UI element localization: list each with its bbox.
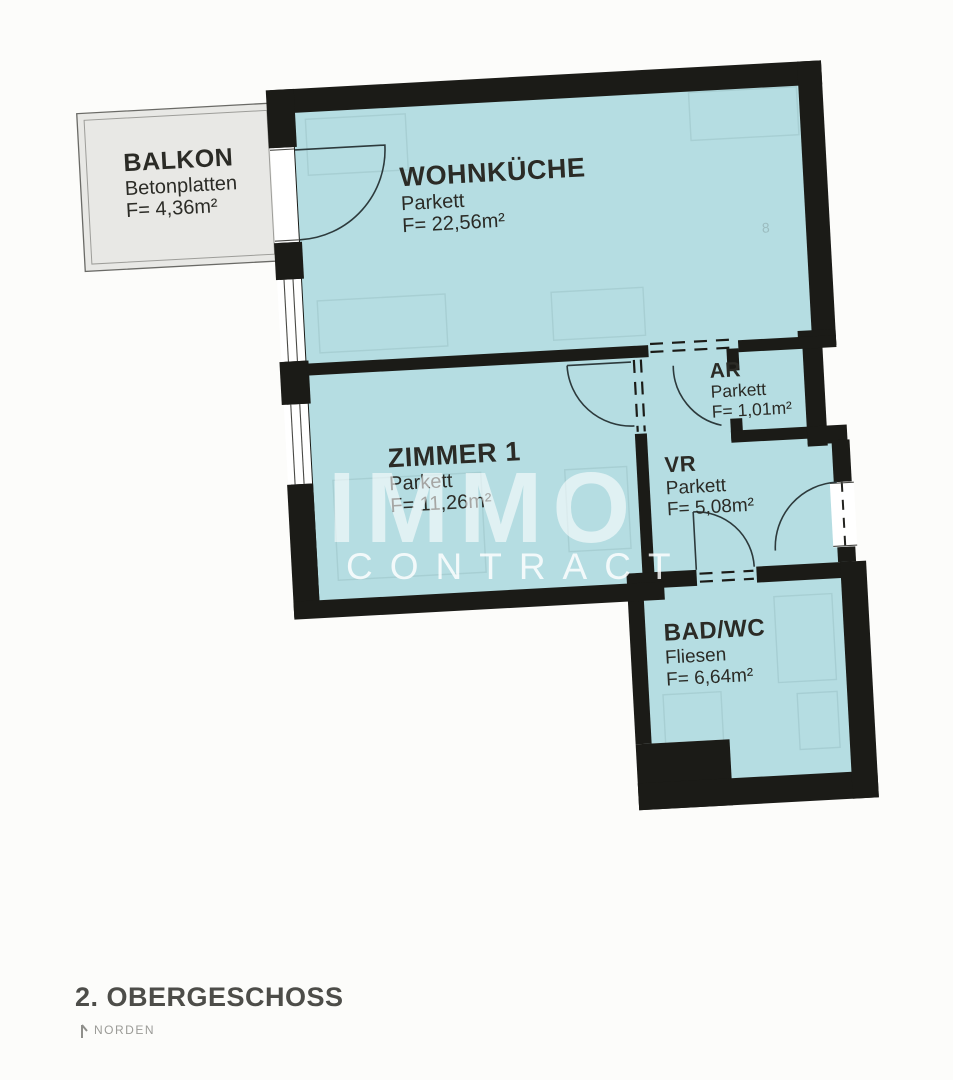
north-indicator: NORDEN: [78, 1020, 155, 1040]
balcony-door-opening: [270, 147, 299, 243]
badwc-floor: Fliesen: [664, 644, 726, 668]
ar-name: AR: [709, 358, 742, 383]
window-zimmer1: [284, 404, 312, 485]
north-arrow-icon: [78, 1022, 89, 1039]
floor-level-label: 2. OBERGESCHOSS: [75, 982, 344, 1013]
floor-wohnkueche: [283, 76, 827, 374]
radiator-symbol: 8: [761, 219, 770, 235]
badwc-name: BAD/WC: [663, 614, 766, 646]
floor-zimmer1: [297, 347, 656, 608]
floorplan-drawing: 8: [0, 0, 953, 1080]
balkon-name: BALKON: [123, 143, 234, 177]
window-wohnkueche: [277, 279, 305, 362]
vr-name: VR: [664, 451, 697, 478]
north-label: NORDEN: [94, 1023, 155, 1037]
entrance-door: [830, 481, 857, 547]
floorplan-page: 8: [0, 0, 953, 1080]
